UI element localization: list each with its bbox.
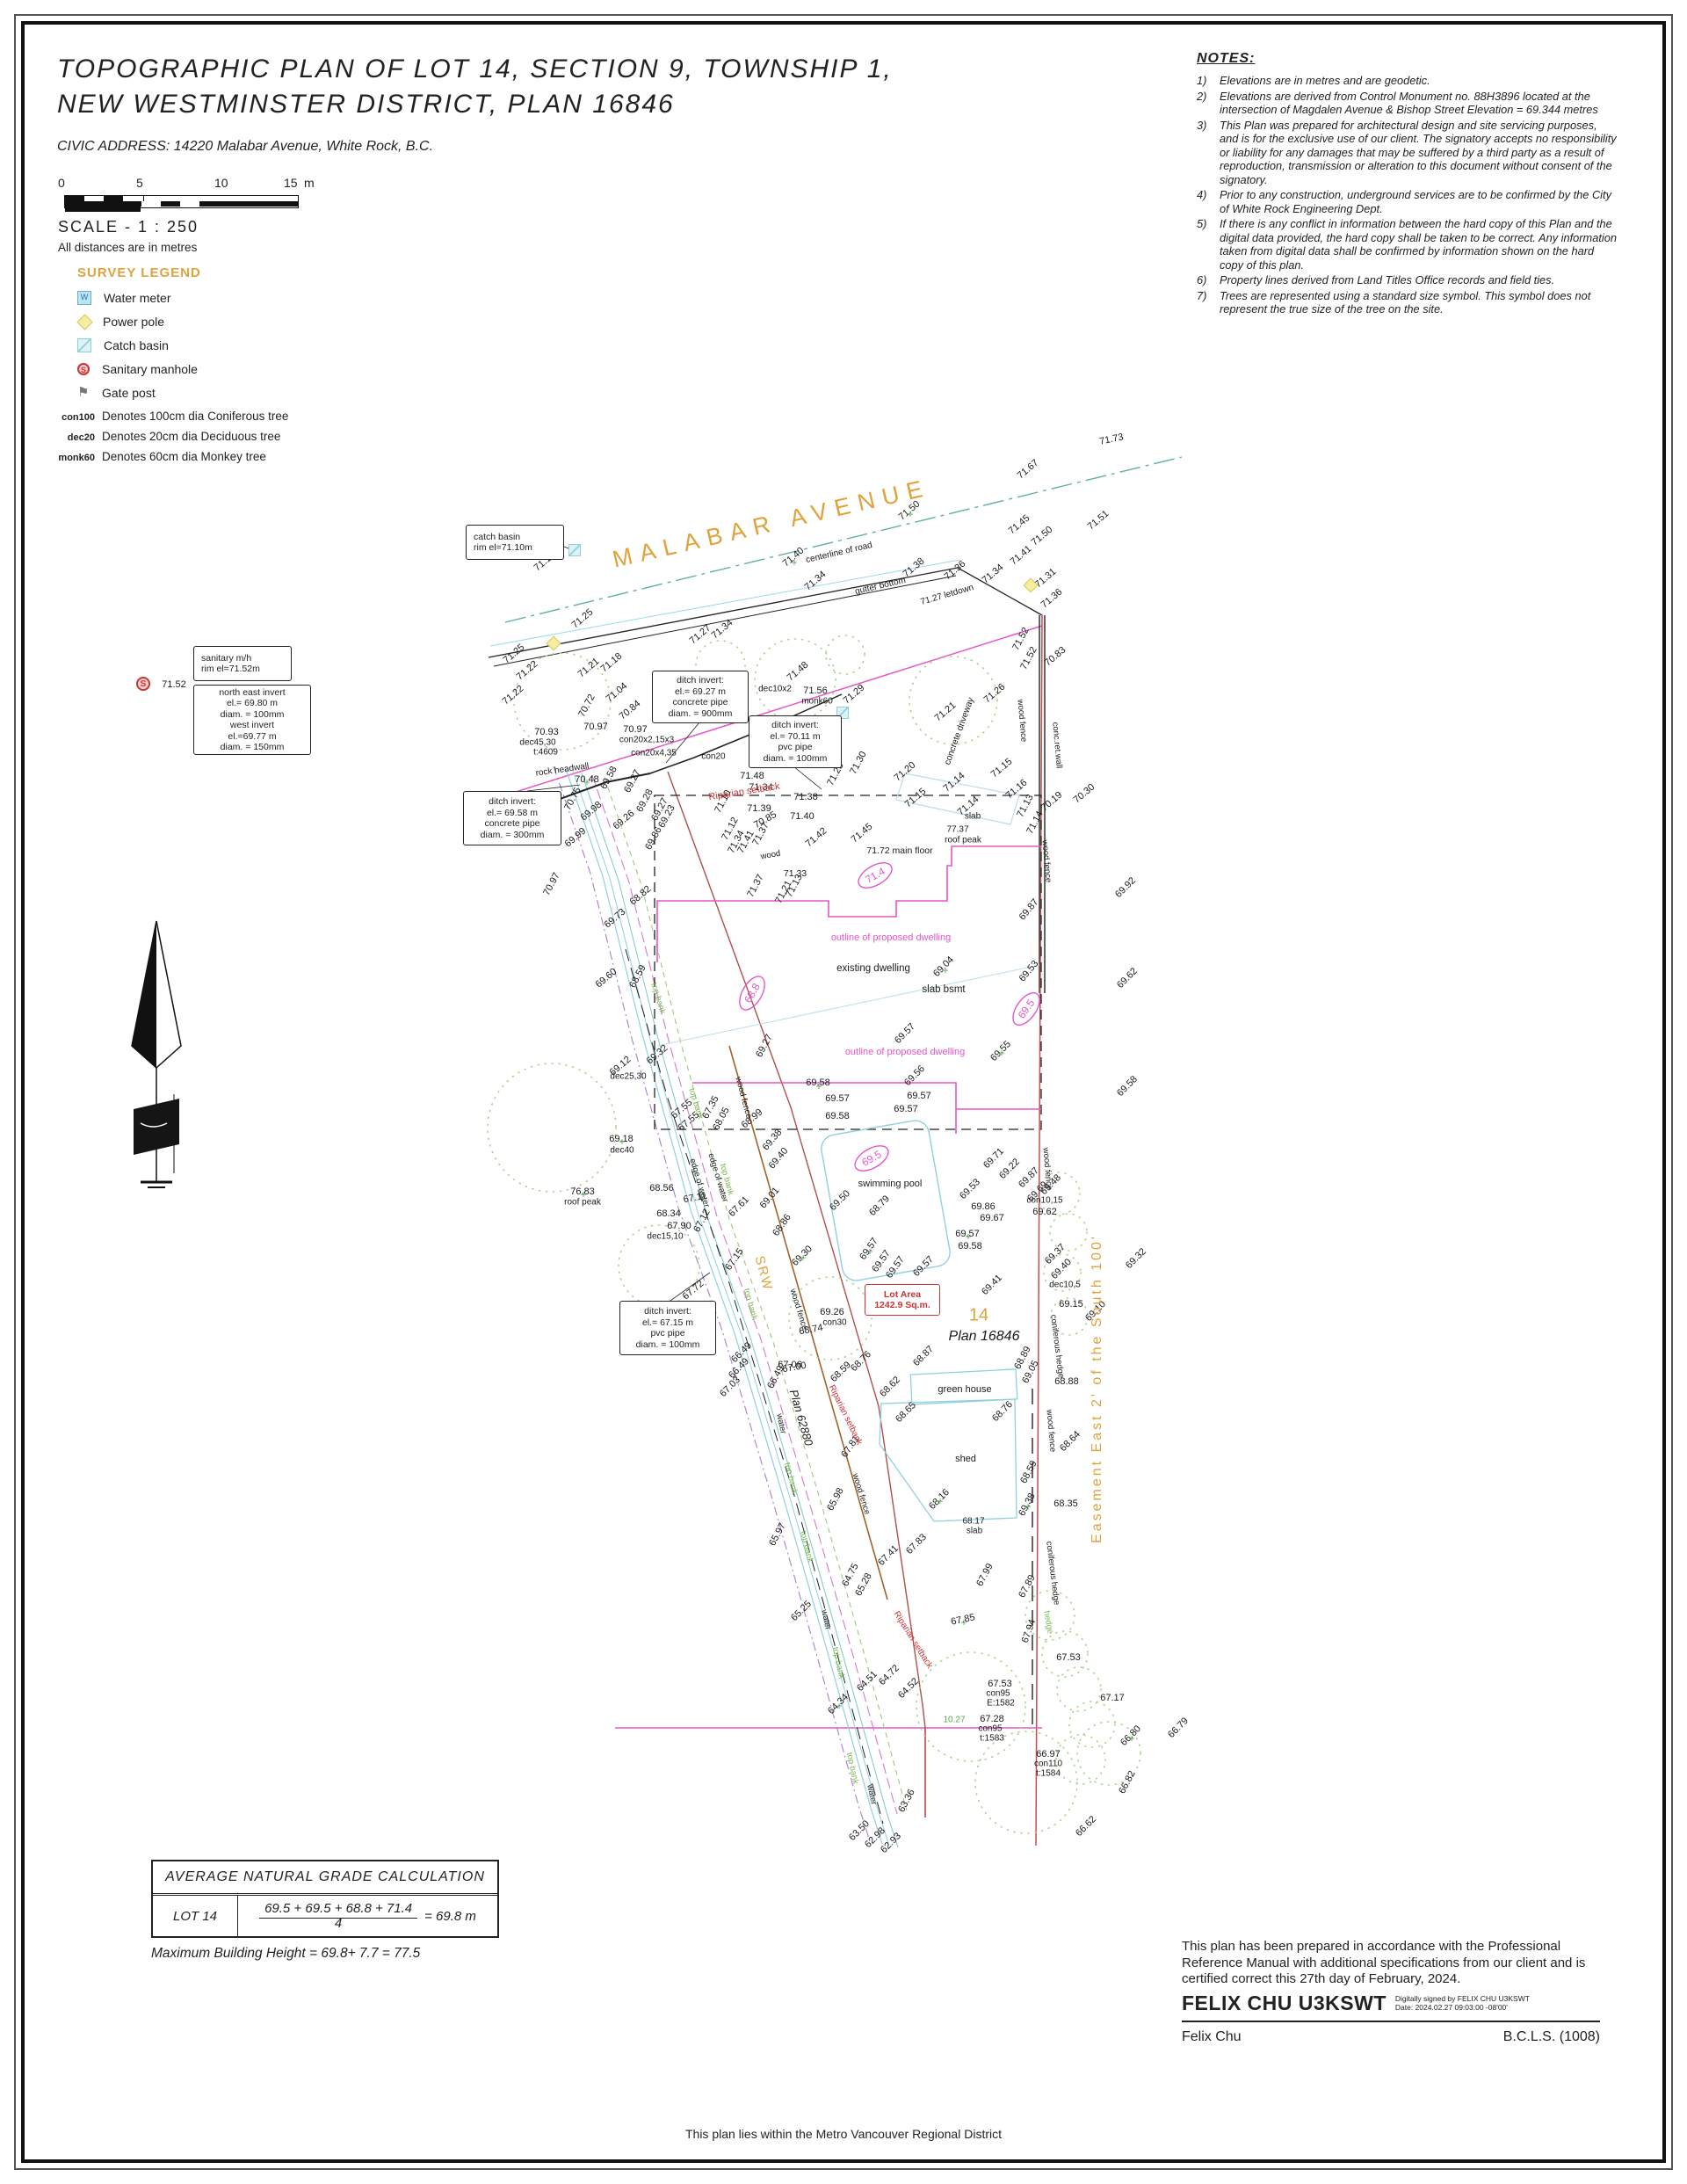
plan-label: 65.97 (767, 1521, 788, 1548)
plan-label: con110 (1034, 1760, 1062, 1769)
surveyor-name: Felix Chu (1182, 2029, 1242, 2045)
north-arrow-icon (132, 921, 181, 1187)
plan-label: 68.64 (1058, 1429, 1082, 1454)
plan-label: dec10,5 (1049, 1281, 1081, 1290)
plan-label: MALABAR AVENUE (610, 474, 933, 573)
plan-label: 71.72 main floor (866, 845, 932, 856)
oval-grade-label: 68.8 (735, 972, 770, 1013)
plan-label: con95 (978, 1724, 1002, 1734)
plan-label: top bank (782, 1462, 799, 1495)
plan-label: 70.75 (562, 786, 583, 812)
region-footer-note: This plan lies within the Metro Vancouve… (0, 2127, 1687, 2141)
plan-label: 68.76 (990, 1399, 1015, 1424)
plan-label: 71.18 (599, 651, 625, 675)
plan-label: swimming pool (858, 1179, 923, 1189)
plan-label: 67.61 (727, 1194, 751, 1219)
plan-label: 69.62 (1032, 1207, 1057, 1217)
plan-label: 63.36 (896, 1788, 917, 1814)
tree-symbol (1057, 1667, 1101, 1711)
scale-tick: 15 (284, 176, 298, 190)
plan-label: 71.67 (1016, 458, 1041, 482)
plan-label: slab (967, 1527, 982, 1536)
legend-item: Catch basin (77, 336, 169, 355)
plan-label: 71.15 (903, 787, 929, 810)
callout-box: north east invertel.= 69.80 mdiam. = 100… (193, 685, 311, 755)
plan-label: 67.83 (904, 1532, 929, 1556)
plan-label: top bank (742, 1288, 759, 1321)
average-natural-grade-table: AVERAGE NATURAL GRADE CALCULATION LOT 14… (151, 1860, 499, 1938)
plan-label: 66.49 (727, 1356, 751, 1381)
plan-label: 69.53 (958, 1177, 982, 1201)
plan-label: coniferous hedge (1048, 1314, 1066, 1379)
survey-plan-sheet: 71.468.869.569.5 TOPOGRAPHIC PLAN OF LOT… (0, 0, 1687, 2184)
signature-name: FELIX CHU U3KSWT (1182, 1992, 1387, 2015)
legend-item-label: Sanitary manhole (102, 362, 198, 376)
callout-box: catch basinrim el=71.10m (466, 525, 564, 560)
plan-label: 67.89 (1017, 1573, 1038, 1600)
plan-label: 69.27 (622, 768, 643, 795)
plan-label: 71.30 (848, 750, 869, 776)
scale-text: SCALE - 1 : 250 (58, 218, 199, 236)
plan-label: 70.83 (1043, 645, 1068, 669)
plan-label: 69.53 (1017, 959, 1041, 984)
plan-label: 71.45 (850, 822, 875, 845)
plan-label: 71.15 (989, 757, 1015, 780)
power-pole-icon (76, 314, 92, 330)
sheet-outer-border (14, 14, 1673, 2170)
plan-label: 68.35 (1053, 1498, 1078, 1509)
plan-label: 69.28 (634, 787, 655, 814)
plan-label: outline of proposed dwelling (845, 1047, 965, 1057)
plan-label: 71.38 (901, 556, 927, 580)
plan-label: 71.52 (1018, 645, 1039, 671)
notes-header: NOTES: (1197, 51, 1617, 67)
plan-label: top bank (844, 1752, 860, 1785)
plan-label: 71.22 (501, 684, 526, 707)
plan-label: 69.62 (1115, 966, 1140, 990)
plan-label: 70.30 (1072, 782, 1097, 806)
plan-label: 69.50 (828, 1188, 852, 1213)
max-building-height-note: Maximum Building Height = 69.8+ 7.7 = 77… (151, 1946, 420, 1962)
plan-label: 68.59 (627, 963, 648, 990)
sanitary-manhole-icon: S (77, 363, 90, 375)
spot-marker: + (580, 1188, 586, 1201)
plan-label: 69.57 (911, 1254, 936, 1279)
spot-marker: + (815, 1080, 822, 1092)
plan-label: SRW (752, 1254, 776, 1293)
plan-label: 69.98 (579, 800, 605, 824)
plan-label: 68.34 (656, 1208, 681, 1219)
legend-tree-code: monk60Denotes 60cm dia Monkey tree (49, 450, 266, 463)
plan-label: 68.65 (894, 1400, 918, 1425)
plan-label: 69.92 (1113, 875, 1138, 900)
spot-marker: + (866, 1245, 872, 1258)
spot-marker: + (960, 1616, 967, 1629)
oval-grade-label: 69.5 (851, 1141, 892, 1176)
grade-denominator: 4 (335, 1915, 342, 1931)
plan-label: Plan 62880 (787, 1388, 816, 1447)
gate-post-icon: ⚑ (77, 387, 90, 399)
callout-box: ditch invert:el.= 69.27 mconcrete pipedi… (652, 671, 749, 723)
svg-text:69.5: 69.5 (859, 1148, 884, 1169)
legend-item: Power pole (77, 312, 164, 331)
plan-label: 71.22 (515, 659, 540, 683)
plan-label: 71.20 (893, 760, 918, 784)
plan-label: 71.52 (162, 679, 186, 690)
tree-symbol (1056, 1735, 1105, 1784)
plan-label: con30 (822, 1318, 846, 1328)
plan-label: 71.34 (710, 618, 735, 642)
certification-block: This plan has been prepared in accordanc… (1182, 1939, 1600, 2045)
plan-label: 68.86 (771, 1212, 793, 1237)
plan-label: dec10x2 (758, 685, 792, 694)
plan-label: 67.15 (723, 1246, 746, 1272)
plan-label: outline of proposed dwelling (831, 932, 951, 943)
spot-marker: + (800, 1252, 806, 1264)
plan-label: 69.57 (894, 1104, 918, 1114)
plan-label: E:1582 (987, 1699, 1015, 1709)
callout-box: Lot Area1242.9 Sq.m. (865, 1284, 940, 1316)
plan-label: monk60 (801, 697, 833, 707)
plan-label: 65.98 (825, 1486, 846, 1513)
plan-label: wood fence (1044, 1409, 1057, 1452)
plan-label: dec45,30 (519, 738, 555, 748)
legend-item-label: Power pole (103, 315, 164, 329)
plan-label: 71.45 (1007, 513, 1032, 537)
note-item: 7)Trees are represented using a standard… (1197, 289, 1617, 316)
plan-label: 69.27 (754, 1033, 775, 1059)
spot-marker: + (1128, 1732, 1134, 1745)
plan-label: Easement East 2' of the South 100' (1090, 1234, 1105, 1543)
plan-label: 68.88 (1054, 1376, 1079, 1387)
plan-label: 71.48 (740, 771, 764, 781)
plan-label: 70.93 (534, 727, 559, 737)
plan-label: 71.34 (803, 570, 829, 593)
plan-label: 68.59 (829, 1360, 853, 1384)
legend-item: SSanitary manhole (77, 359, 198, 379)
plan-label: 71.34 (981, 562, 1006, 586)
plan-label: con20x4,35 (631, 749, 677, 758)
plan-label: Riparian setback (708, 781, 781, 803)
plan-label: 68.82 (628, 884, 654, 908)
plan-label: 67.41 (876, 1543, 901, 1568)
tree-symbol (1069, 1701, 1115, 1747)
plan-label: 71.37 (745, 873, 766, 899)
plan-label: con20x2,15x3 (619, 736, 674, 745)
plan-label: wood fence (1015, 699, 1028, 742)
plan-label: wood (760, 849, 781, 862)
plan-label: 67.90 (667, 1221, 691, 1231)
plan-label: 66.82 (1117, 1769, 1138, 1796)
plan-label: 69.32 (1124, 1246, 1148, 1271)
plan-label: 64.72 (877, 1663, 901, 1687)
plan-label: 67.99 (974, 1562, 996, 1588)
svg-text:71.4: 71.4 (863, 865, 887, 886)
plan-label: 69.60 (594, 967, 619, 990)
plan-label: 68.62 (878, 1375, 902, 1399)
plan-label: 69.56 (902, 1063, 927, 1088)
plan-label: t:1583 (980, 1734, 1004, 1744)
plan-label: 69.73 (603, 907, 628, 931)
plan-label: 68.59 (1018, 1459, 1039, 1485)
plan-label: 69.87 (1017, 897, 1041, 923)
plan-label: centerline of road (805, 541, 873, 565)
plan-label: 67.17 (1100, 1693, 1125, 1703)
power-pole-icon (547, 636, 561, 651)
plan-label: 70.97 (541, 871, 562, 897)
plan-label: 71.36 (1039, 587, 1065, 611)
legend-item: WWater meter (77, 288, 171, 308)
plan-label: 68.17 (962, 1517, 984, 1527)
plan-label: 71.50 (1030, 525, 1055, 548)
plan-label: 71.48 (786, 660, 811, 684)
plan-label: 67.28 (980, 1714, 1004, 1724)
plan-label: dec25,30 (610, 1072, 646, 1082)
plan-label: 71.29 (842, 683, 867, 707)
spot-marker: + (937, 1495, 943, 1507)
grade-result: = 69.8 m (424, 1909, 476, 1924)
page-title-line1: TOPOGRAPHIC PLAN OF LOT 14, SECTION 9, T… (57, 54, 893, 84)
plan-label: 71.21 (576, 657, 602, 680)
plan-label: coniferous hedge (1044, 1541, 1061, 1606)
plan-label: 70.19 (1039, 790, 1065, 814)
sanitary-manhole-icon: S (136, 677, 150, 691)
plan-label: t:1584 (1036, 1769, 1061, 1779)
plan-label: Plan 16846 (949, 1329, 1020, 1345)
oval-grade-label: 69.5 (1008, 988, 1045, 1029)
legend-item: ⚑Gate post (77, 383, 156, 403)
spot-marker: + (965, 1230, 971, 1243)
plan-label: 71.56 (803, 686, 828, 696)
plan-label: 71.38 (793, 792, 818, 802)
legend-item-label: Catch basin (104, 338, 169, 352)
water-meter-icon: W (77, 291, 91, 305)
plan-label: 64.51 (855, 1669, 880, 1694)
note-item: 5)If there is any conflict in informatio… (1197, 217, 1617, 272)
plan-label: green house (938, 1384, 991, 1395)
plan-label: 69.26 (820, 1307, 844, 1317)
plan-label: water (819, 1608, 833, 1630)
legend-header: SURVEY LEGEND (77, 265, 201, 280)
plan-label: 69.67 (980, 1213, 1004, 1223)
callout-box: ditch invert:el.= 69.58 mconcrete pipedi… (463, 791, 561, 845)
plan-label: existing dwelling (836, 963, 910, 974)
grade-fraction: 69.5 + 69.5 + 68.8 + 71.4 4 (259, 1901, 417, 1931)
plan-label: 71.27 (688, 623, 713, 647)
plan-label: 71.25 (502, 642, 527, 666)
plan-label: con95 (986, 1689, 1010, 1699)
plan-label: 69.01 (758, 1186, 782, 1211)
plan-label: Riparian setback (892, 1610, 935, 1671)
plan-label: top bank (648, 982, 667, 1015)
plan-label: Riparian setback (827, 1383, 865, 1447)
plan-label: 71.41 (1009, 544, 1034, 568)
plan-label: 66.79 (1166, 1716, 1191, 1740)
plan-label: 69.58 (598, 765, 619, 791)
plan-label: dec15,10 (647, 1232, 683, 1242)
plan-label: 71.04 (605, 681, 630, 705)
plan-label: 71.51 (1086, 509, 1111, 533)
plan-label: 69.15 (1059, 1299, 1083, 1310)
plan-label: 71.14 (942, 771, 967, 795)
plan-label: 70.72 (576, 693, 597, 719)
legend-tree-code: dec20Denotes 20cm dia Deciduous tree (49, 430, 280, 443)
plan-label: water (774, 1412, 788, 1434)
plan-label: con20 (701, 752, 725, 762)
plan-label: wood fence (1039, 839, 1053, 882)
plan-linework: 71.468.869.569.5 (0, 0, 1687, 2184)
callout-box: ditch invert:el.= 67.15 mpvc pipediam. =… (619, 1301, 716, 1355)
plan-label: 65.25 (789, 1599, 814, 1623)
plan-label: shed (955, 1454, 976, 1464)
note-item: 3)This Plan was prepared for architectur… (1197, 119, 1617, 187)
plan-label: 10.27 (943, 1716, 965, 1725)
plan-label: t:4609 (533, 748, 558, 758)
plan-label: 69.99 (563, 826, 589, 850)
distance-note: All distances are in metres (58, 241, 197, 254)
plan-label: 67.03 (718, 1375, 742, 1399)
spot-marker: + (998, 1047, 1004, 1059)
note-item: 2)Elevations are derived from Control Mo… (1197, 90, 1617, 117)
digital-signature: FELIX CHU U3KSWT Digitally signed by FEL… (1182, 1992, 1600, 2022)
plan-label: conc.ret.wall (1050, 722, 1064, 769)
plan-label: 67.12 (691, 1208, 713, 1234)
spot-marker: + (619, 1136, 625, 1148)
plan-label: 68.87 (911, 1344, 936, 1368)
plan-label: 69.26 (612, 809, 637, 832)
plan-label: 69.86 (643, 825, 664, 852)
plan-label: 68.56 (649, 1183, 674, 1194)
scale-tick: 0 (58, 176, 65, 190)
plan-label: 69.57 (893, 1021, 917, 1046)
plan-label: 64.52 (896, 1676, 921, 1701)
legend-tree-code: con100Denotes 100cm dia Coniferous tree (49, 410, 288, 423)
plan-label: 67.72 (681, 1279, 706, 1302)
spot-marker: + (836, 1700, 842, 1712)
plan-label: 66.97 (1036, 1749, 1061, 1760)
plan-label: 14 (969, 1306, 988, 1326)
callout-box: sanitary m/hrim el=71.52m (193, 646, 292, 681)
plan-label: 70.97 (583, 722, 608, 732)
svg-text:68.8: 68.8 (742, 981, 763, 1005)
spot-marker: + (907, 508, 913, 520)
scale-unit: m (304, 176, 315, 190)
scale-tick: 10 (214, 176, 228, 190)
sheet-inner-border (21, 21, 1666, 2163)
signature-meta: Digitally signed by FELIX CHU U3KSWT Dat… (1395, 1992, 1530, 2013)
plan-label: 69.32 (645, 1043, 670, 1067)
surveyor-designation: B.C.L.S. (1008) (1503, 2029, 1600, 2045)
civic-address: CIVIC ADDRESS: 14220 Malabar Avenue, Whi… (57, 139, 433, 155)
plan-label: 71.25 (570, 607, 596, 631)
plan-label: 71.40 (790, 811, 815, 822)
spot-marker: + (583, 776, 590, 788)
oval-grade-label: 71.4 (854, 858, 895, 893)
plan-label: slab (965, 812, 981, 822)
callout-box: ditch invert:el.= 70.11 mpvc pipediam. =… (749, 715, 842, 768)
plan-label: 69.86 (971, 1201, 996, 1212)
plan-label: 65.28 (853, 1571, 874, 1598)
legend-item-label: Water meter (104, 291, 171, 305)
catch-basin-icon (568, 544, 581, 556)
plan-label: slab bsmt (922, 984, 965, 995)
plan-label: 71.27 letdown (920, 583, 975, 607)
plan-label: 69.57 (907, 1091, 931, 1101)
plan-label: top bank (798, 1530, 815, 1564)
plan-label: 67.94 (1020, 1618, 1039, 1644)
plan-label: con10,15 (1026, 1196, 1062, 1206)
plan-label: 67.53 (1056, 1652, 1081, 1663)
plan-label: 71.36 (943, 559, 968, 583)
plan-label: 69.41 (980, 1273, 1004, 1297)
scale-tick: 5 (136, 176, 143, 190)
svg-text:69.5: 69.5 (1016, 997, 1038, 1020)
grade-table-header: AVERAGE NATURAL GRADE CALCULATION (153, 1861, 497, 1896)
plan-label: roof peak (945, 836, 981, 845)
legend-item-label: Gate post (102, 386, 156, 400)
plan-label: 69.58 (1115, 1074, 1140, 1099)
plan-label: gutter bottom (854, 576, 907, 597)
plan-label: 69.22 (997, 1157, 1022, 1181)
spot-marker: + (791, 556, 797, 569)
tree-symbol (975, 1731, 1077, 1833)
plan-label: wood fence (851, 1472, 872, 1516)
note-item: 4)Prior to any construction, underground… (1197, 188, 1617, 215)
note-item: 6)Property lines derived from Land Title… (1197, 273, 1617, 287)
plan-label: 66.62 (1074, 1814, 1098, 1839)
notes-block: NOTES: 1)Elevations are in metres and ar… (1197, 51, 1617, 318)
plan-label: 77.37 (946, 825, 968, 835)
plan-label: 67.53 (988, 1679, 1012, 1689)
note-item: 1)Elevations are in metres and are geode… (1197, 74, 1617, 88)
scale-bar (64, 195, 299, 208)
plan-label: 68.76 (849, 1349, 873, 1374)
grade-table-lot: LOT 14 (153, 1896, 238, 1936)
catch-basin-icon (77, 338, 91, 352)
spot-marker: + (1025, 1500, 1031, 1513)
plan-label: 71.14 (1025, 809, 1046, 836)
plan-label: water (865, 1783, 879, 1805)
plan-label: 68.79 (867, 1194, 892, 1218)
spot-marker: + (942, 964, 948, 976)
plan-label: 70.84 (618, 699, 643, 722)
certification-paragraph: This plan has been prepared in accordanc… (1182, 1939, 1600, 1988)
plan-label: 71.73 (1098, 432, 1124, 446)
plan-label: 71.21 (933, 700, 959, 724)
plan-label: 71.42 (804, 826, 829, 850)
tree-symbol (826, 635, 865, 674)
plan-label: 70.97 (623, 724, 648, 735)
plan-label: 67.06 (778, 1360, 802, 1370)
plan-label: 69.58 (825, 1111, 850, 1121)
tree-symbol (488, 1063, 616, 1192)
plan-label: 69.57 (825, 1093, 850, 1104)
plan-label: hedge (1041, 1610, 1054, 1635)
page-title-line2: NEW WESTMINSTER DISTRICT, PLAN 16846 (57, 90, 675, 120)
plan-label: top bank (830, 1646, 846, 1680)
plan-label: 71.26 (982, 682, 1008, 706)
